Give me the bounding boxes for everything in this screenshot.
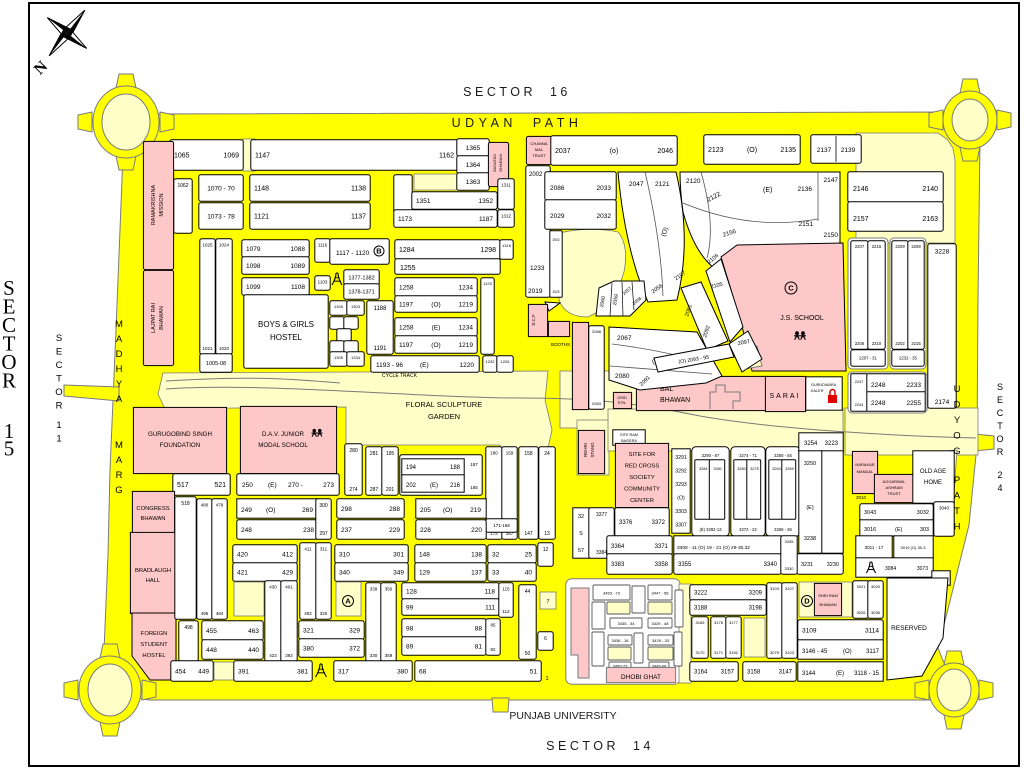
svg-text:111: 111 [485, 604, 495, 611]
svg-text:2019: 2019 [528, 288, 543, 295]
svg-text:2146: 2146 [853, 186, 869, 193]
svg-text:391: 391 [238, 668, 249, 675]
svg-text:MODAL SCHOOL: MODAL SCHOOL [258, 442, 308, 449]
svg-text:3355: 3355 [678, 562, 692, 568]
svg-text:RAMAKRISHNA: RAMAKRISHNA [151, 185, 157, 226]
svg-text:2202: 2202 [895, 341, 905, 346]
svg-text:1187: 1187 [479, 216, 493, 223]
svg-text:BHAWAN: BHAWAN [140, 516, 165, 522]
svg-text:229: 229 [389, 527, 400, 534]
svg-text:2248: 2248 [871, 382, 886, 389]
svg-text:201: 201 [386, 487, 395, 493]
svg-text:3036: 3036 [871, 610, 881, 615]
svg-text:420: 420 [237, 551, 248, 558]
svg-text:3158: 3158 [747, 670, 761, 676]
svg-text:(o): (o) [610, 148, 619, 155]
svg-text:3117: 3117 [866, 649, 880, 655]
svg-text:1220: 1220 [460, 362, 475, 369]
svg-text:2247: 2247 [855, 380, 863, 384]
svg-text:(O): (O) [843, 649, 852, 655]
svg-text:517: 517 [177, 482, 189, 489]
svg-text:479: 479 [216, 503, 224, 508]
svg-text:(E): (E) [268, 482, 277, 489]
svg-text:2047: 2047 [629, 181, 644, 188]
svg-text:D.A.V. JUNIOR: D.A.V. JUNIOR [262, 431, 305, 438]
svg-text:2123: 2123 [708, 147, 724, 154]
svg-text:1284: 1284 [399, 247, 415, 254]
svg-text:2244: 2244 [855, 403, 863, 407]
svg-text:311: 311 [320, 547, 328, 552]
svg-text:2086: 2086 [550, 185, 565, 192]
svg-text:1334: 1334 [351, 355, 361, 360]
svg-text:(E): (E) [420, 362, 429, 369]
svg-text:3146 - 45: 3146 - 45 [802, 649, 828, 655]
svg-text:H: H [116, 364, 123, 375]
svg-text:1: 1 [545, 676, 548, 682]
svg-text:(E): (E) [763, 187, 772, 194]
svg-text:S: S [997, 382, 1003, 392]
svg-text:1188: 1188 [374, 306, 388, 312]
svg-text:2157: 2157 [853, 216, 869, 223]
svg-text:KALER: KALER [811, 389, 824, 393]
svg-text:287: 287 [370, 487, 379, 493]
svg-text:2002: 2002 [552, 238, 559, 242]
svg-text:T: T [954, 506, 960, 517]
svg-text:OLD AGE: OLD AGE [920, 469, 946, 475]
svg-text:3274 - 71: 3274 - 71 [739, 453, 757, 458]
svg-text:HALL: HALL [146, 578, 161, 584]
svg-text:187: 187 [470, 462, 478, 467]
svg-text:(O): (O) [266, 507, 275, 514]
svg-text:1162: 1162 [439, 153, 454, 160]
svg-text:3308 - 11 (O) 19 - 21 (O) 29-3: 3308 - 11 (O) 19 - 21 (O) 29-30,32 [677, 545, 750, 551]
svg-text:2150: 2150 [824, 232, 839, 239]
svg-text:159: 159 [506, 451, 514, 456]
svg-text:430: 430 [269, 585, 277, 590]
svg-text:280: 280 [349, 448, 358, 454]
svg-text:2083: 2083 [592, 401, 602, 406]
svg-text:68: 68 [419, 668, 427, 675]
svg-text:3435 - 34: 3435 - 34 [618, 621, 636, 626]
svg-text:2210: 2210 [872, 341, 882, 346]
svg-text:269: 269 [302, 507, 313, 514]
svg-text:118: 118 [485, 588, 496, 595]
svg-text:CHANNA: CHANNA [531, 141, 548, 146]
svg-text:3182: 3182 [729, 650, 739, 655]
svg-text:3284: 3284 [699, 467, 707, 471]
svg-text:180: 180 [490, 451, 498, 456]
svg-text:M: M [115, 319, 123, 330]
svg-text:SOCIETY: SOCIETY [629, 475, 655, 481]
svg-text:329: 329 [349, 627, 360, 634]
svg-text:3383: 3383 [611, 562, 625, 568]
svg-text:3103: 3103 [785, 650, 795, 655]
svg-text:330: 330 [370, 653, 378, 658]
svg-text:440: 440 [248, 647, 259, 654]
svg-text:1232: 1232 [486, 359, 496, 364]
svg-text:99: 99 [406, 604, 414, 611]
svg-text:1005-08: 1005-08 [206, 361, 226, 367]
svg-text:250: 250 [242, 482, 253, 489]
svg-text:1117 - 1120: 1117 - 1120 [336, 250, 370, 257]
svg-text:S.C.F: S.C.F [531, 314, 536, 326]
svg-text:2: 2 [997, 470, 1002, 480]
svg-text:3269: 3269 [785, 467, 793, 471]
svg-text:Y: Y [954, 415, 961, 426]
svg-text:380: 380 [303, 645, 314, 652]
svg-text:349: 349 [393, 569, 404, 576]
svg-text:32: 32 [578, 514, 584, 520]
svg-text:J.S. SCHOOL: J.S. SCHOOL [780, 315, 824, 322]
svg-text:3377: 3377 [596, 512, 607, 518]
svg-text:498: 498 [184, 625, 193, 631]
svg-text:2255: 2255 [907, 400, 922, 407]
svg-text:2136: 2136 [798, 186, 813, 193]
svg-text:CYCLE TRACK: CYCLE TRACK [382, 373, 418, 379]
svg-text:1123: 1123 [483, 281, 492, 286]
svg-text:2080: 2080 [615, 373, 630, 380]
svg-text:40: 40 [525, 569, 533, 576]
svg-text:3238: 3238 [804, 536, 816, 542]
svg-text:(E): (E) [806, 505, 814, 511]
svg-text:2209: 2209 [895, 244, 905, 249]
svg-text:171-168: 171-168 [493, 523, 510, 528]
svg-text:3114: 3114 [865, 627, 879, 634]
svg-text:3198: 3198 [749, 606, 763, 612]
svg-text:1219: 1219 [459, 342, 474, 349]
svg-text:3372: 3372 [652, 520, 666, 526]
svg-text:2032: 2032 [597, 213, 612, 220]
svg-text:SECTOR 16: SECTOR 16 [463, 85, 571, 99]
svg-text:1138: 1138 [351, 186, 366, 193]
svg-text:2206: 2206 [855, 341, 865, 346]
svg-text:300: 300 [319, 503, 328, 509]
svg-text:1079: 1079 [246, 246, 261, 253]
svg-text:3228: 3228 [935, 249, 950, 256]
svg-text:C: C [997, 408, 1004, 418]
svg-text:G: G [953, 446, 960, 457]
svg-text:1065: 1065 [174, 153, 190, 160]
svg-text:D: D [116, 349, 123, 360]
svg-text:82: 82 [490, 647, 496, 652]
svg-text:2002: 2002 [529, 172, 543, 178]
svg-text:G: G [115, 485, 122, 496]
svg-text:FOREIGN: FOREIGN [141, 631, 167, 637]
svg-text:1116: 1116 [318, 243, 328, 248]
svg-text:421: 421 [237, 569, 248, 576]
svg-text:BRADLAUGH: BRADLAUGH [135, 568, 171, 574]
svg-text:137: 137 [471, 569, 482, 576]
svg-text:SITE FOR: SITE FOR [629, 452, 656, 458]
svg-text:SITE RAM: SITE RAM [620, 433, 638, 437]
svg-text:129: 129 [419, 569, 430, 576]
svg-text:3429 - 48: 3429 - 48 [652, 621, 670, 626]
svg-text:TRUST: TRUST [532, 153, 546, 158]
svg-text:1137: 1137 [351, 214, 366, 221]
svg-text:3364: 3364 [611, 544, 625, 550]
svg-text:3010: 3010 [856, 495, 867, 500]
svg-text:1: 1 [56, 434, 61, 445]
svg-text:1258: 1258 [399, 284, 414, 291]
svg-text:1351: 1351 [416, 198, 431, 205]
svg-text:1098: 1098 [246, 263, 261, 270]
svg-text:2140: 2140 [922, 186, 938, 193]
svg-text:1024: 1024 [219, 243, 230, 248]
svg-text:STN.: STN. [618, 401, 627, 405]
svg-text:448: 448 [206, 647, 217, 654]
svg-text:2135: 2135 [780, 147, 796, 154]
svg-text:270 -: 270 - [288, 482, 303, 489]
svg-text:3170: 3170 [696, 650, 706, 655]
svg-text:2120: 2120 [686, 178, 701, 185]
svg-text:51: 51 [530, 668, 538, 675]
svg-text:3011 - 17: 3011 - 17 [865, 545, 884, 550]
svg-text:273: 273 [323, 482, 334, 489]
svg-text:25: 25 [525, 551, 533, 558]
svg-text:219: 219 [470, 507, 481, 514]
svg-text:M: M [115, 440, 123, 451]
svg-text:3293: 3293 [675, 482, 687, 488]
svg-text:(E): (E) [430, 483, 438, 489]
svg-text:1103: 1103 [318, 280, 328, 285]
svg-text:359: 359 [385, 653, 393, 658]
svg-text:MISSION: MISSION [159, 193, 165, 216]
svg-text:R: R [997, 447, 1004, 457]
svg-text:3177: 3177 [729, 620, 739, 625]
svg-text:3109: 3109 [802, 627, 817, 634]
svg-text:CENTER: CENTER [630, 498, 654, 504]
svg-text:138: 138 [471, 551, 482, 558]
svg-text:1219: 1219 [459, 301, 474, 308]
svg-text:DHOBI GHAT: DHOBI GHAT [621, 674, 661, 681]
svg-text:3188: 3188 [694, 606, 708, 612]
svg-text:3290 - 87: 3290 - 87 [702, 453, 720, 458]
svg-text:1197: 1197 [399, 301, 413, 308]
svg-text:1197: 1197 [399, 342, 413, 349]
svg-text:195: 195 [386, 451, 395, 457]
svg-text:Y: Y [116, 379, 123, 390]
svg-text:1073 - 78: 1073 - 78 [207, 213, 235, 220]
svg-text:112: 112 [502, 609, 510, 614]
svg-text:2208: 2208 [911, 244, 921, 249]
svg-text:1365: 1365 [466, 145, 481, 152]
svg-text:3019 (O) 35-3: 3019 (O) 35-3 [901, 545, 927, 550]
svg-text:57: 57 [578, 548, 584, 554]
svg-text:(O): (O) [431, 301, 440, 308]
svg-text:(O): (O) [747, 147, 757, 154]
svg-text:449: 449 [198, 668, 209, 675]
svg-text:3084: 3084 [885, 566, 896, 572]
svg-text:454: 454 [175, 668, 186, 675]
svg-text:1234: 1234 [459, 324, 474, 331]
svg-text:1363: 1363 [466, 179, 481, 186]
svg-text:3209: 3209 [749, 591, 763, 597]
svg-text:158: 158 [524, 451, 533, 457]
svg-text:3330: 3330 [785, 566, 795, 571]
svg-text:188: 188 [450, 465, 461, 471]
svg-text:13: 13 [544, 531, 550, 537]
svg-text:412: 412 [282, 551, 293, 558]
svg-text:A: A [116, 334, 123, 345]
svg-text:(E): (E) [836, 671, 844, 677]
svg-text:115: 115 [502, 587, 510, 592]
svg-text:UDYAN PATH: UDYAN PATH [452, 116, 583, 130]
svg-text:480: 480 [201, 503, 209, 508]
svg-text:317: 317 [338, 668, 349, 675]
svg-text:C: C [56, 360, 63, 371]
svg-text:2137: 2137 [817, 147, 832, 154]
svg-text:297: 297 [319, 531, 328, 537]
svg-text:2046: 2046 [657, 148, 673, 155]
svg-text:STUDENT: STUDENT [140, 642, 168, 648]
svg-text:(O): (O) [443, 507, 452, 514]
svg-text:3272 - 22: 3272 - 22 [739, 527, 757, 532]
svg-text:1173: 1173 [398, 216, 412, 223]
svg-text:SARAI: SARAI [769, 393, 800, 400]
svg-text:TRUST: TRUST [887, 491, 901, 496]
svg-text:1316: 1316 [502, 243, 512, 248]
svg-text:148: 148 [419, 551, 430, 558]
svg-text:147: 147 [524, 531, 533, 537]
svg-text:1352: 1352 [479, 198, 494, 205]
svg-text:AGGARWAL: AGGARWAL [883, 479, 907, 484]
svg-text:B: B [376, 247, 382, 256]
svg-text:249: 249 [241, 507, 252, 514]
svg-text:(E): (E) [432, 324, 441, 331]
svg-text:350: 350 [385, 587, 393, 592]
svg-text:3040: 3040 [939, 506, 950, 511]
svg-text:1255: 1255 [400, 265, 416, 272]
svg-text:C: C [788, 284, 794, 293]
svg-text:BHAWAN: BHAWAN [660, 397, 690, 404]
svg-text:2215: 2215 [911, 341, 921, 346]
svg-text:3250: 3250 [804, 461, 816, 467]
svg-text:E: E [997, 395, 1003, 405]
svg-text:3073: 3073 [917, 566, 928, 572]
svg-text:3429 - 33: 3429 - 33 [652, 638, 670, 643]
svg-text:2151: 2151 [799, 221, 814, 228]
svg-text:3223: 3223 [825, 441, 839, 447]
svg-text:185: 185 [470, 485, 478, 490]
svg-text:3164: 3164 [694, 670, 708, 676]
svg-text:248: 248 [241, 527, 252, 534]
svg-text:463: 463 [248, 628, 259, 635]
svg-text:BHAWAN: BHAWAN [819, 602, 836, 607]
svg-text:R: R [116, 470, 123, 481]
svg-text:238: 238 [303, 527, 314, 534]
svg-text:3107: 3107 [785, 586, 795, 591]
svg-text:205: 205 [420, 507, 431, 514]
svg-text:3275: 3275 [750, 467, 758, 471]
svg-text:3258 - 55: 3258 - 55 [774, 453, 792, 458]
svg-text:1233: 1233 [530, 265, 545, 272]
svg-text:518: 518 [181, 501, 190, 507]
svg-text:3264: 3264 [772, 467, 780, 471]
svg-text:3254: 3254 [804, 441, 818, 447]
svg-text:3231: 3231 [801, 562, 813, 568]
svg-text:372: 372 [349, 645, 360, 652]
svg-text:3268 - 36: 3268 - 36 [774, 527, 792, 532]
svg-text:3335: 3335 [785, 539, 795, 544]
svg-text:MANDAL: MANDAL [857, 469, 874, 474]
svg-text:SECTOR 14: SECTOR 14 [546, 739, 654, 753]
svg-text:303: 303 [920, 527, 929, 533]
svg-text:1312: 1312 [501, 214, 512, 219]
svg-text:340: 340 [339, 569, 350, 576]
svg-text:3307: 3307 [675, 523, 687, 529]
svg-text:DHARAM: DHARAM [498, 154, 503, 171]
svg-text:R: R [2, 369, 16, 393]
svg-text:HOME: HOME [924, 480, 942, 486]
svg-text:1099: 1099 [246, 284, 261, 291]
svg-text:STAND: STAND [590, 442, 595, 458]
svg-text:85: 85 [490, 623, 496, 628]
svg-text:281: 281 [370, 451, 379, 457]
svg-text:(O): (O) [431, 342, 440, 349]
svg-text:2216: 2216 [872, 244, 882, 249]
svg-text:1020: 1020 [219, 346, 230, 351]
svg-text:FLORAL SCULPTURE: FLORAL SCULPTURE [406, 400, 482, 409]
svg-text:REHRI: REHRI [583, 443, 588, 457]
svg-text:1378-1371: 1378-1371 [348, 289, 374, 295]
svg-text:44: 44 [525, 589, 531, 595]
svg-text:1148: 1148 [254, 186, 269, 193]
svg-text:HOSTEL: HOSTEL [142, 653, 166, 659]
svg-text:495: 495 [201, 611, 209, 616]
svg-text:89: 89 [406, 643, 414, 650]
svg-text:3292: 3292 [675, 469, 687, 475]
svg-text:1298: 1298 [480, 247, 496, 254]
svg-text:298: 298 [341, 506, 352, 513]
svg-text:GRID: GRID [617, 396, 627, 400]
svg-text:1070 - 70: 1070 - 70 [207, 185, 235, 192]
svg-text:1377-1382: 1377-1382 [348, 275, 374, 281]
svg-text:1121: 1121 [254, 214, 269, 221]
svg-text:1021: 1021 [202, 346, 213, 351]
svg-text:2121: 2121 [655, 181, 670, 188]
svg-text:SHRI RAM: SHRI RAM [818, 593, 838, 598]
svg-text:A: A [954, 491, 961, 502]
svg-text:3453 - 73: 3453 - 73 [603, 590, 621, 595]
svg-text:D: D [954, 400, 961, 411]
svg-text:3171: 3171 [714, 650, 724, 655]
svg-text:401: 401 [285, 585, 293, 590]
svg-text:SANATAN: SANATAN [492, 154, 497, 172]
svg-text:RESERVED: RESERVED [891, 625, 927, 632]
svg-text:(E): (E) [895, 527, 903, 533]
svg-text:2029: 2029 [550, 213, 565, 220]
svg-text:4: 4 [997, 483, 1002, 493]
svg-text:423: 423 [269, 653, 277, 658]
svg-text:5: 5 [4, 437, 15, 461]
svg-text:202: 202 [406, 483, 417, 489]
svg-text:3291: 3291 [675, 455, 687, 461]
svg-text:32: 32 [492, 551, 500, 558]
svg-text:2232 - 35: 2232 - 35 [899, 356, 917, 361]
svg-text:228: 228 [420, 527, 431, 534]
svg-text:411: 411 [304, 547, 312, 552]
svg-text:O: O [953, 431, 960, 442]
svg-text:237: 237 [341, 527, 352, 534]
svg-text:33: 33 [492, 569, 500, 576]
svg-text:O: O [996, 434, 1003, 444]
svg-text:2067: 2067 [617, 335, 632, 342]
svg-text:521: 521 [214, 482, 226, 489]
svg-text:3144: 3144 [802, 671, 816, 677]
svg-text:HOSTEL: HOSTEL [270, 333, 303, 342]
svg-text:1089: 1089 [291, 263, 306, 270]
svg-text:2139: 2139 [841, 147, 856, 154]
